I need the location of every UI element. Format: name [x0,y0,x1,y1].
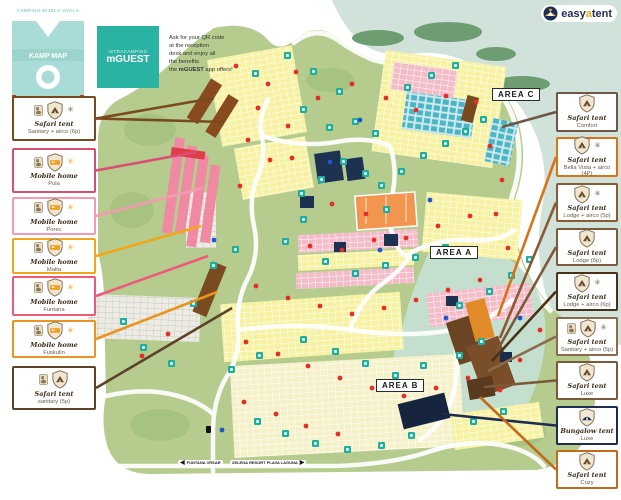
red-service-dot [254,284,259,289]
legend-icons-row: ✳ [34,322,74,340]
red-service-dot [414,108,419,113]
legend-type-label: Safari tent [568,293,607,301]
facility-glyph [528,258,531,261]
red-service-dot [268,158,273,163]
legend-name-label: Fuskulin [43,350,65,357]
facility-glyph [394,374,397,377]
red-service-dot [402,394,407,399]
bungalow-shield-icon [578,408,596,427]
facility-glyph [472,420,475,423]
facility-glyph [234,248,237,251]
red-service-dot [494,212,499,217]
mguest-brand-top: ISTRACAMPING [108,49,147,54]
red-service-dot [308,244,313,249]
red-service-dot [350,82,355,87]
red-service-dot [294,70,299,75]
facility-glyph [410,434,413,437]
red-service-dot [444,94,449,99]
red-service-dot [276,352,281,357]
legend-icons-row: ✳ [573,185,601,203]
facility-glyph [480,340,483,343]
legend-icons-row: ✳ [34,153,74,171]
tent-shield-icon [573,274,591,293]
facility-glyph [302,108,305,111]
promo-line: Ask for your QR code [169,34,233,42]
legend-icons-row: ✳ [34,239,74,257]
legend-right-comfort: Safari tentComfort [556,92,618,132]
facility-glyph [380,184,383,187]
red-service-dot [246,138,251,143]
legend-left-malta: ✳Mobile homeMalta [12,238,96,274]
entrance-gate-icon [206,426,211,433]
legend-type-label: Mobile home [30,341,78,349]
facility-glyph [385,208,388,211]
legend-icons-row [578,230,596,248]
red-service-dot [338,376,343,381]
legend-icons-row: ✳ [34,279,74,297]
promo-line: the benefits [169,58,233,66]
legend-icons-row [578,363,596,381]
facility-glyph [430,74,433,77]
facility-glyph [300,192,303,195]
facility-glyph [464,130,467,133]
legend-name-label: Luxe [581,391,594,398]
facility-glyph [364,362,367,365]
facility-glyph [384,264,387,267]
legend-right-luxe: Bungalow tentLuxe [556,406,618,445]
facility-glyph [302,218,305,221]
tent-shield-icon [578,363,596,382]
sanitary-icon [34,242,43,253]
tent-shield-icon [51,370,69,389]
red-service-dot [242,400,247,405]
tent-shield-icon [573,136,591,155]
facility-glyph [302,338,305,341]
legend-name-label: Luxe [581,436,594,443]
legend-right-cozy: Safari tentCozy [556,450,618,489]
facility-glyph [414,256,417,259]
sanitary-icon [34,325,43,336]
red-service-dot [506,246,511,251]
legend-name-label: Cozy [580,480,593,487]
facility-glyph [334,350,337,353]
legend-name-label: Porec [46,227,61,234]
legend-name-label: Funtana [43,307,64,314]
red-service-dot [256,106,261,111]
legend-name-label: Bella Vista + airco (4P) [559,165,615,178]
campsite-logo: CAMPING BIJELA UVALA KAMP MAP [8,6,88,102]
legend-left-porec: ✳Mobile homePorec [12,197,96,235]
legend-type-label: Mobile home [30,218,78,226]
red-service-dot [350,312,355,317]
facility-glyph [212,264,215,267]
mobile-shield-icon [46,198,64,217]
legend-type-label: Safari tent [35,120,74,128]
area-b-label: AREA B [376,379,424,392]
facility-glyph [364,172,367,175]
legend-type-label: Safari tent [568,382,607,390]
legend-icons-row: ✳ [34,199,74,217]
facility-glyph [502,410,505,413]
legend-name-label: Pula [48,181,60,188]
mguest-brand: mGUEST [106,54,149,65]
legend-type-label: Mobile home [30,298,78,306]
red-service-dot [286,296,291,301]
red-service-dot [500,178,505,183]
red-service-dot [404,236,409,241]
promo-line: the mGUEST app offers! [169,66,233,74]
promo-line: at the reception [169,42,233,50]
legend-right-bella-vista-airco-4p-: ✳Safari tentBella Vista + airco (4P) [556,137,618,177]
legend-right-lodge-6p-: Safari tentLodge (6p) [556,228,618,266]
facility-glyph [314,442,317,445]
red-service-dot [434,386,439,391]
legend-type-label: Safari tent [35,390,74,398]
facility-glyph [320,178,323,181]
red-service-dot [238,184,243,189]
red-service-dot [538,328,543,333]
legend-icons-row [578,408,596,426]
campsite-logo-title: CAMPING BIJELA UVALA [8,8,88,13]
facility-glyph [422,154,425,157]
red-service-dot [274,412,279,417]
legend-left-fuskulin: ✳Mobile homeFuskulin [12,320,96,358]
airco-icon: ✳ [67,284,74,292]
facility-glyph [284,432,287,435]
facility-glyph [354,120,357,123]
tent-shield-icon [573,185,591,204]
easyatent-wordmark: easyatent [561,8,612,20]
legend-left-sanitary-airco-6p-: ✳Safari tentSanitary + airco (6p) [12,96,96,141]
facility-glyph [400,170,403,173]
legend-icons-row: ✳ [567,319,607,337]
facility-glyph [458,304,461,307]
facility-glyph [230,368,233,371]
blue-service-dot [378,248,383,253]
blue-service-dot [444,316,449,321]
legend-icons-row [39,371,69,389]
arrow-left-icon: ◀ [180,461,185,466]
promo-line: desk and enjoy all [169,50,233,58]
legend-type-label: Mobile home [30,258,78,266]
legend-name-label: Malta [47,267,61,274]
easyatent-logo: easyatent [541,5,617,22]
blue-service-dot [358,118,363,123]
red-service-dot [318,304,323,309]
camping-map-page: { "header": { "logo": { "title": "CAMPIN… [0,0,621,500]
facility-glyph [338,90,341,93]
facility-glyph [284,240,287,243]
red-service-dot [244,340,249,345]
red-service-dot [304,424,309,429]
easyatent-icon [543,6,558,21]
svg-text:KAMP MAP: KAMP MAP [29,53,67,60]
sanitary-icon [34,157,43,168]
facility-glyph [422,364,425,367]
red-service-dot [372,238,377,243]
sanitary-icon [34,282,43,293]
legend-name-label: Lodge + airco (6p) [563,302,610,309]
airco-icon: ✳ [600,324,607,332]
red-service-dot [316,96,321,101]
legend-name-label: Lodge + airco (5p) [563,213,610,220]
red-service-dot [488,144,493,149]
facility-glyph [342,160,345,163]
legend-type-label: Safari tent [568,249,607,257]
facility-glyph [346,448,349,451]
red-service-dot [466,376,471,381]
red-service-dot [498,388,503,393]
tent-shield-icon [578,94,596,113]
legend-type-label: Safari tent [568,204,607,212]
legend-type-label: Safari tent [568,156,607,164]
arrow-right-icon: ▶ [300,461,305,466]
airco-icon: ✳ [594,279,601,287]
legend-name-label: Sanitary + airco (6p) [28,129,80,136]
road-sign-left: ◀ FUNTANA VRSAR [178,460,223,467]
airco-icon: ✳ [67,158,74,166]
legend-type-label: Safari tent [568,471,607,479]
road-sign-right: ZELENA RESORT PLAVA LAGUNA ▶ [230,460,306,467]
mobile-shield-icon [46,153,64,172]
mobile-shield-icon [46,238,64,257]
blue-service-dot [518,316,523,321]
red-service-dot [468,214,473,219]
tent-shield-icon [578,452,596,471]
legend-icons-row [578,452,596,470]
facility-glyph [122,320,125,323]
facility-glyph [324,260,327,263]
airco-icon: ✳ [594,142,601,150]
campsite-logo-m-icon: KAMP MAP [8,15,88,103]
legend-right-luxe: Safari tentLuxe [556,361,618,400]
airco-icon: ✳ [67,244,74,252]
mguest-promo-text: Ask for your QR code at the reception de… [169,26,233,88]
facility-glyph [406,86,409,89]
red-service-dot [340,248,345,253]
mguest-card: ISTRACAMPING mGUEST [97,26,159,88]
mguest-promo: ISTRACAMPING mGUEST Ask for your QR code… [97,26,267,88]
legend-icons-row: ✳ [573,137,601,155]
tent-shield-icon [579,319,597,338]
tent-shield-icon [46,101,64,120]
sanitary-icon [567,323,576,334]
legend-right-lodge-airco-5p-: ✳Safari tentLodge + airco (5p) [556,183,618,222]
facility-glyph [256,420,259,423]
facility-glyph [488,290,491,293]
red-service-dot [384,96,389,101]
legend-type-label: Bungalow tent [560,427,613,435]
facility-glyph [454,64,457,67]
legend-type-label: Safari tent [568,338,607,346]
red-service-dot [140,354,145,359]
mobile-shield-icon [46,321,64,340]
red-service-dot [336,432,341,437]
red-service-dot [518,358,523,363]
legend-name-label: Sanitary + airco (5p) [561,347,613,354]
facility-glyph [328,126,331,129]
legend-left-pula: ✳Mobile homePula [12,148,96,193]
legend-left-funtana: ✳Mobile homeFuntana [12,276,96,316]
area-c-label: AREA C [492,88,540,101]
airco-icon: ✳ [67,327,74,335]
facility-glyph [354,272,357,275]
blue-service-dot [428,198,433,203]
red-service-dot [370,386,375,391]
legend-left-sanitary-5p-: Safari tentsanitary (5p) [12,366,96,410]
red-service-dot [166,332,171,337]
legend-icons-row: ✳ [34,101,74,119]
legend-type-label: Mobile home [30,172,78,180]
airco-icon: ✳ [594,190,601,198]
legend-right-lodge-airco-6p-: ✳Safari tentLodge + airco (6p) [556,272,618,311]
airco-icon: ✳ [67,204,74,212]
red-service-dot [330,202,335,207]
sanitary-icon [34,202,43,213]
legend-icons-row [578,95,596,113]
facility-glyph [312,70,315,73]
sanitary-icon [34,105,43,116]
facility-glyph [444,142,447,145]
facility-glyph [482,118,485,121]
red-service-dot [382,306,387,311]
legend-name-label: sanitary (5p) [38,399,70,406]
tent-shield-icon [578,229,596,248]
red-service-dot [446,288,451,293]
facility-glyph [142,346,145,349]
facility-glyph [458,354,461,357]
facility-glyph [170,362,173,365]
facility-glyph [286,54,289,57]
legend-name-label: Comfort [577,123,598,130]
red-service-dot [478,278,483,283]
red-service-dot [474,100,479,105]
facility-glyph [374,132,377,135]
red-service-dot [364,212,369,217]
facility-glyph [380,444,383,447]
red-service-dot [306,364,311,369]
blue-service-dot [220,428,225,433]
red-service-dot [436,224,441,229]
red-service-dot [286,124,291,129]
legend-type-label: Safari tent [568,114,607,122]
airco-icon: ✳ [67,106,74,114]
legend-name-label: Lodge (6p) [573,258,601,265]
blue-service-dot [328,160,333,165]
area-a-label: AREA A [430,246,478,259]
facility-glyph [258,354,261,357]
legend-icons-row: ✳ [573,274,601,292]
sanitary-icon [39,374,48,385]
legend-right-sanitary-airco-5p-: ✳Safari tentSanitary + airco (5p) [556,317,618,356]
blue-service-dot [212,238,217,243]
red-service-dot [290,156,295,161]
mobile-shield-icon [46,278,64,297]
red-service-dot [414,298,419,303]
